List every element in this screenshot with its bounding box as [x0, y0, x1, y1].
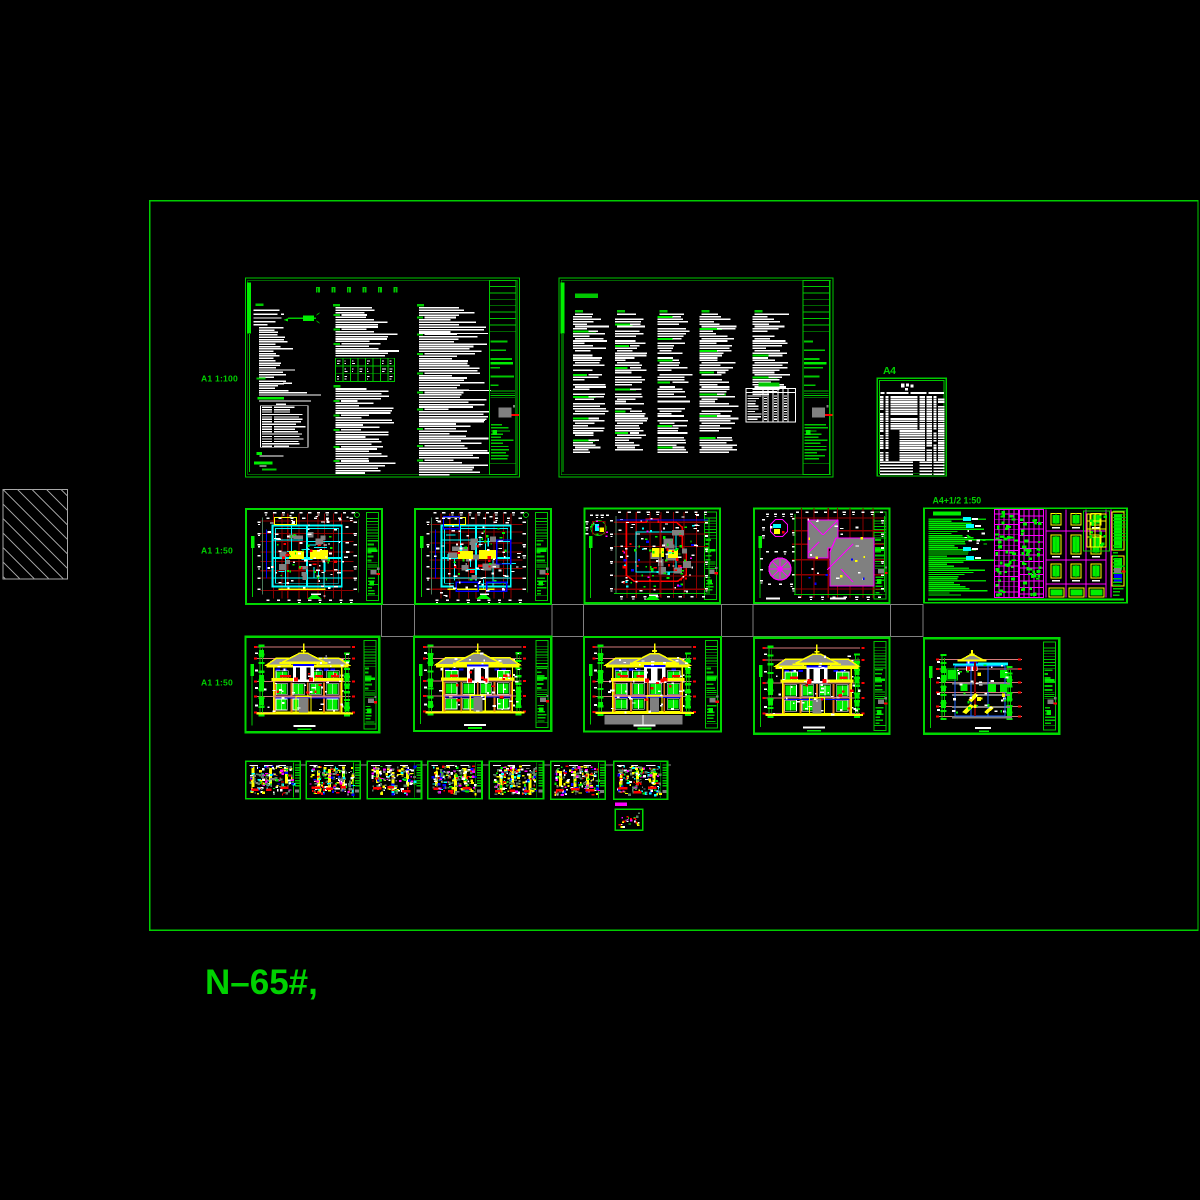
svg-text:A4: A4	[883, 365, 896, 377]
svg-text:A1 1:50: A1 1:50	[201, 678, 233, 688]
svg-text:A1 1:50: A1 1:50	[201, 546, 233, 556]
svg-text:A4+1/2 1:50: A4+1/2 1:50	[933, 496, 982, 506]
svg-text:A1 1:100: A1 1:100	[201, 374, 238, 384]
svg-text:N–65#,: N–65#,	[205, 963, 318, 1002]
